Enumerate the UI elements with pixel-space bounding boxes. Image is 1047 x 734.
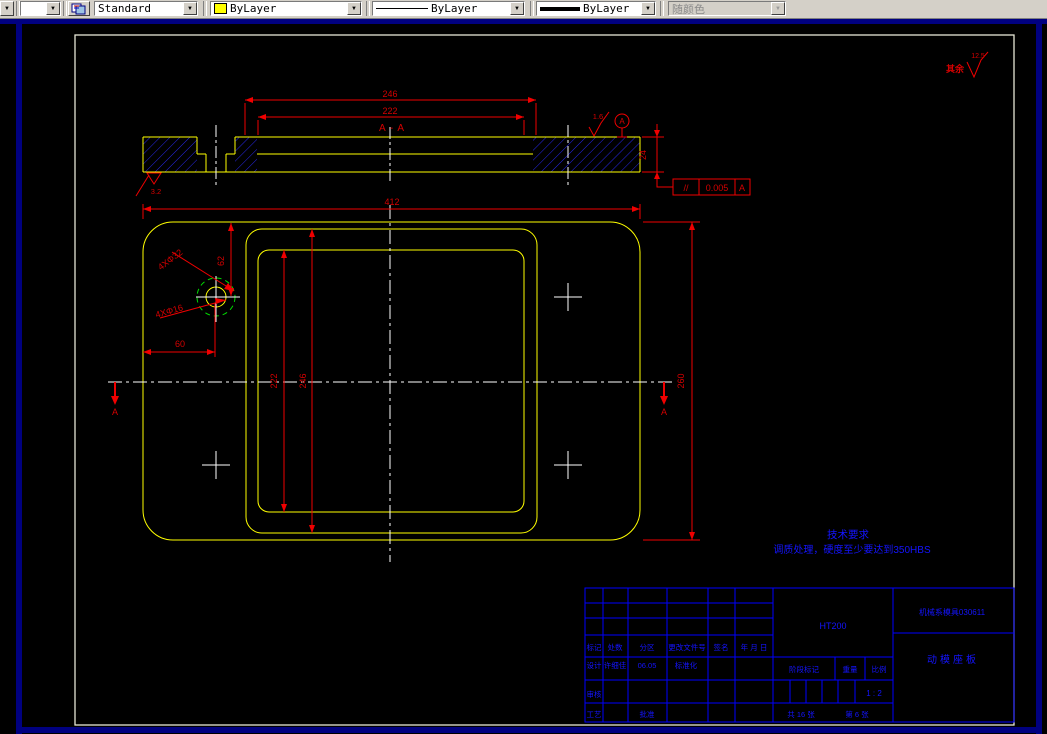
lineweight-value: ByLayer [583, 2, 629, 15]
dim-24: 24 [638, 150, 648, 160]
surface-finish-symbol [147, 173, 161, 184]
fcf-tolerance: 0.005 [706, 183, 729, 193]
dim-60: 60 [175, 339, 185, 349]
tb-count: 处数 [608, 642, 623, 652]
lineweight-sample [540, 7, 580, 11]
counterbore-note: 4XΦ32 [156, 247, 185, 272]
text-style-manager-button[interactable] [68, 1, 90, 16]
tb-date-header: 年 月 日 [741, 642, 768, 652]
tb-standardization: 标准化 [675, 660, 698, 670]
dropdown-arrow-icon[interactable]: ▼ [347, 2, 361, 15]
tb-design-label: 设计 [587, 660, 602, 670]
datum-letter: A [619, 117, 625, 126]
tb-sheet-total: 共 16 张 [787, 710, 815, 719]
tb-change-file: 更改文件号 [668, 642, 706, 652]
surface-default-value: 12.5 [971, 53, 985, 60]
default-surface-finish: 其余 12.5 [946, 52, 988, 77]
tb-mark: 标记 [587, 642, 602, 652]
tb-material: HT200 [819, 621, 846, 631]
lineweight-control-combo[interactable]: ByLayer ▼ [536, 1, 656, 16]
cut-label-left: A [112, 407, 118, 417]
tb-design-date: 06.05 [638, 661, 657, 670]
layer-control-combo[interactable]: ▼ [20, 1, 61, 16]
tb-review: 审核 [587, 689, 602, 699]
dropdown-arrow-icon[interactable]: ▼ [641, 2, 655, 15]
tb-weight: 重量 [843, 665, 858, 674]
tb-drawing-no: 机械系模具030611 [919, 607, 986, 617]
plotstyle-value: 随颜色 [672, 2, 705, 15]
toolbar-separator [366, 1, 370, 16]
toolbar-separator [203, 1, 207, 16]
drawing-canvas[interactable]: 246 222 A - A 24 A 1.6 3.2 // 0.005 A [0, 18, 1047, 734]
tb-scale-label: 比例 [872, 664, 887, 674]
hole-note: 4XΦ16 [154, 302, 184, 319]
toolbar-separator [660, 1, 664, 16]
text-style-combo[interactable]: Standard ▼ [94, 1, 198, 16]
cad-window: { "toolbar": { "style_value": "Standard"… [0, 0, 1047, 734]
tb-sheet-current: 第 6 张 [845, 709, 869, 719]
plan-dimension-text: 412 62 60 4XΦ32 4XΦ16 222 246 260 A A [112, 197, 686, 417]
section-dimensions [136, 97, 750, 196]
text-style-icon [71, 3, 87, 15]
object-properties-toolbar: ▼ ▼ Standard ▼ ByLayer ▼ ByLayer ▼ [0, 0, 1047, 19]
dim-412: 412 [384, 197, 399, 207]
color-control-combo[interactable]: ByLayer ▼ [210, 1, 362, 16]
toolbar-separator [530, 1, 534, 16]
fcf-symbol: // [683, 183, 689, 193]
cut-arrow-right [660, 396, 668, 405]
tb-signature: 签名 [714, 642, 729, 652]
text-style-value: Standard [98, 2, 151, 15]
dim-246-v: 246 [298, 373, 308, 388]
tb-zone: 分区 [640, 643, 655, 652]
cut-label-right: A [661, 407, 667, 417]
plan-dimensions [111, 204, 700, 540]
dim-62: 62 [216, 256, 226, 266]
color-swatch [214, 3, 227, 14]
plan-centerlines [108, 205, 672, 562]
linetype-control-combo[interactable]: ByLayer ▼ [372, 1, 525, 16]
technical-requirements: 技术要求 调质处理，硬度至少要达到350HBS [773, 528, 931, 556]
plotstyle-control-combo: 随颜色 ▼ [668, 1, 786, 16]
tb-approve: 批准 [640, 709, 655, 719]
linetype-sample [376, 8, 428, 9]
finish-value-bottom: 3.2 [151, 187, 161, 196]
layer-combo-cut-button[interactable]: ▼ [0, 1, 14, 16]
tb-scale-value: 1 : 2 [866, 689, 882, 698]
plan-view [143, 222, 640, 540]
linetype-value: ByLayer [431, 2, 477, 15]
tech-line: 调质处理，硬度至少要达到350HBS [773, 543, 931, 556]
fcf-datum: A [739, 183, 745, 193]
dim-260: 260 [676, 373, 686, 388]
pocket-outline [246, 229, 537, 533]
title-block: 标记 处数 分区 更改文件号 签名 年 月 日 设计 许细佳 06.05 标准化… [585, 588, 1014, 722]
section-centerlines [216, 125, 568, 186]
finish-value-top: 1.6 [593, 112, 603, 121]
dim-222-v: 222 [269, 373, 279, 388]
cut-arrow-left [111, 396, 119, 405]
tb-designer: 许细佳 [604, 660, 627, 670]
color-value: ByLayer [230, 2, 276, 15]
tb-stage: 阶段标记 [789, 664, 819, 674]
title-block-text: 标记 处数 分区 更改文件号 签名 年 月 日 设计 许细佳 06.05 标准化… [587, 607, 986, 719]
dropdown-arrow-icon[interactable]: ▼ [46, 2, 60, 15]
dropdown-arrow-icon: ▼ [4, 6, 10, 12]
section-title: A - A [379, 123, 405, 134]
layer-control-value [21, 2, 46, 15]
tech-title: 技术要求 [827, 528, 869, 541]
section-view [143, 125, 640, 186]
toolbar-separator [63, 1, 67, 16]
dim-246: 246 [382, 89, 397, 99]
dim-222: 222 [382, 106, 397, 116]
tb-process: 工艺 [587, 710, 602, 719]
plate-outline [143, 222, 640, 540]
tb-part-name: 动模座板 [927, 653, 979, 666]
dropdown-arrow-icon[interactable]: ▼ [183, 2, 197, 15]
surface-default-label: 其余 [946, 63, 965, 74]
dropdown-arrow-icon: ▼ [771, 2, 785, 15]
dropdown-arrow-icon[interactable]: ▼ [510, 2, 524, 15]
